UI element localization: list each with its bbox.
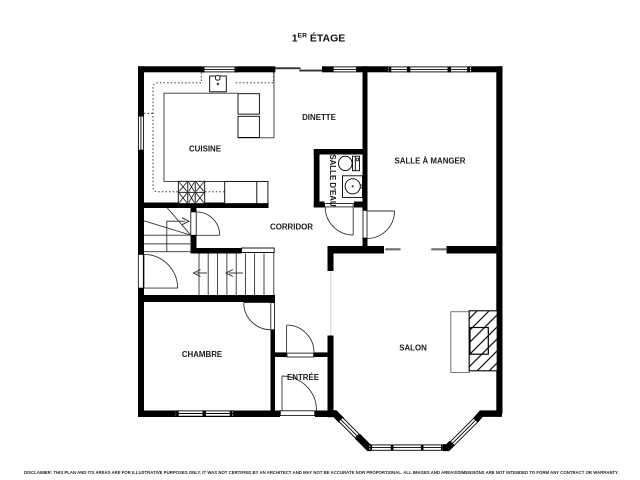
svg-text:DISCLAIMER: THIS PLAN AND ITS: DISCLAIMER: THIS PLAN AND ITS AREAS ARE … — [24, 470, 619, 475]
svg-text:CORRIDOR: CORRIDOR — [270, 223, 313, 232]
svg-text:SALON: SALON — [399, 344, 427, 353]
svg-text:SALLE À MANGER: SALLE À MANGER — [394, 157, 465, 166]
svg-text:CUISINE: CUISINE — [189, 145, 221, 154]
svg-text:CHAMBRE: CHAMBRE — [182, 350, 222, 359]
svg-text:SALLE D'EAU: SALLE D'EAU — [328, 154, 337, 207]
svg-text:ENTRÉE: ENTRÉE — [287, 373, 319, 382]
svg-text:DINETTE: DINETTE — [302, 113, 336, 122]
